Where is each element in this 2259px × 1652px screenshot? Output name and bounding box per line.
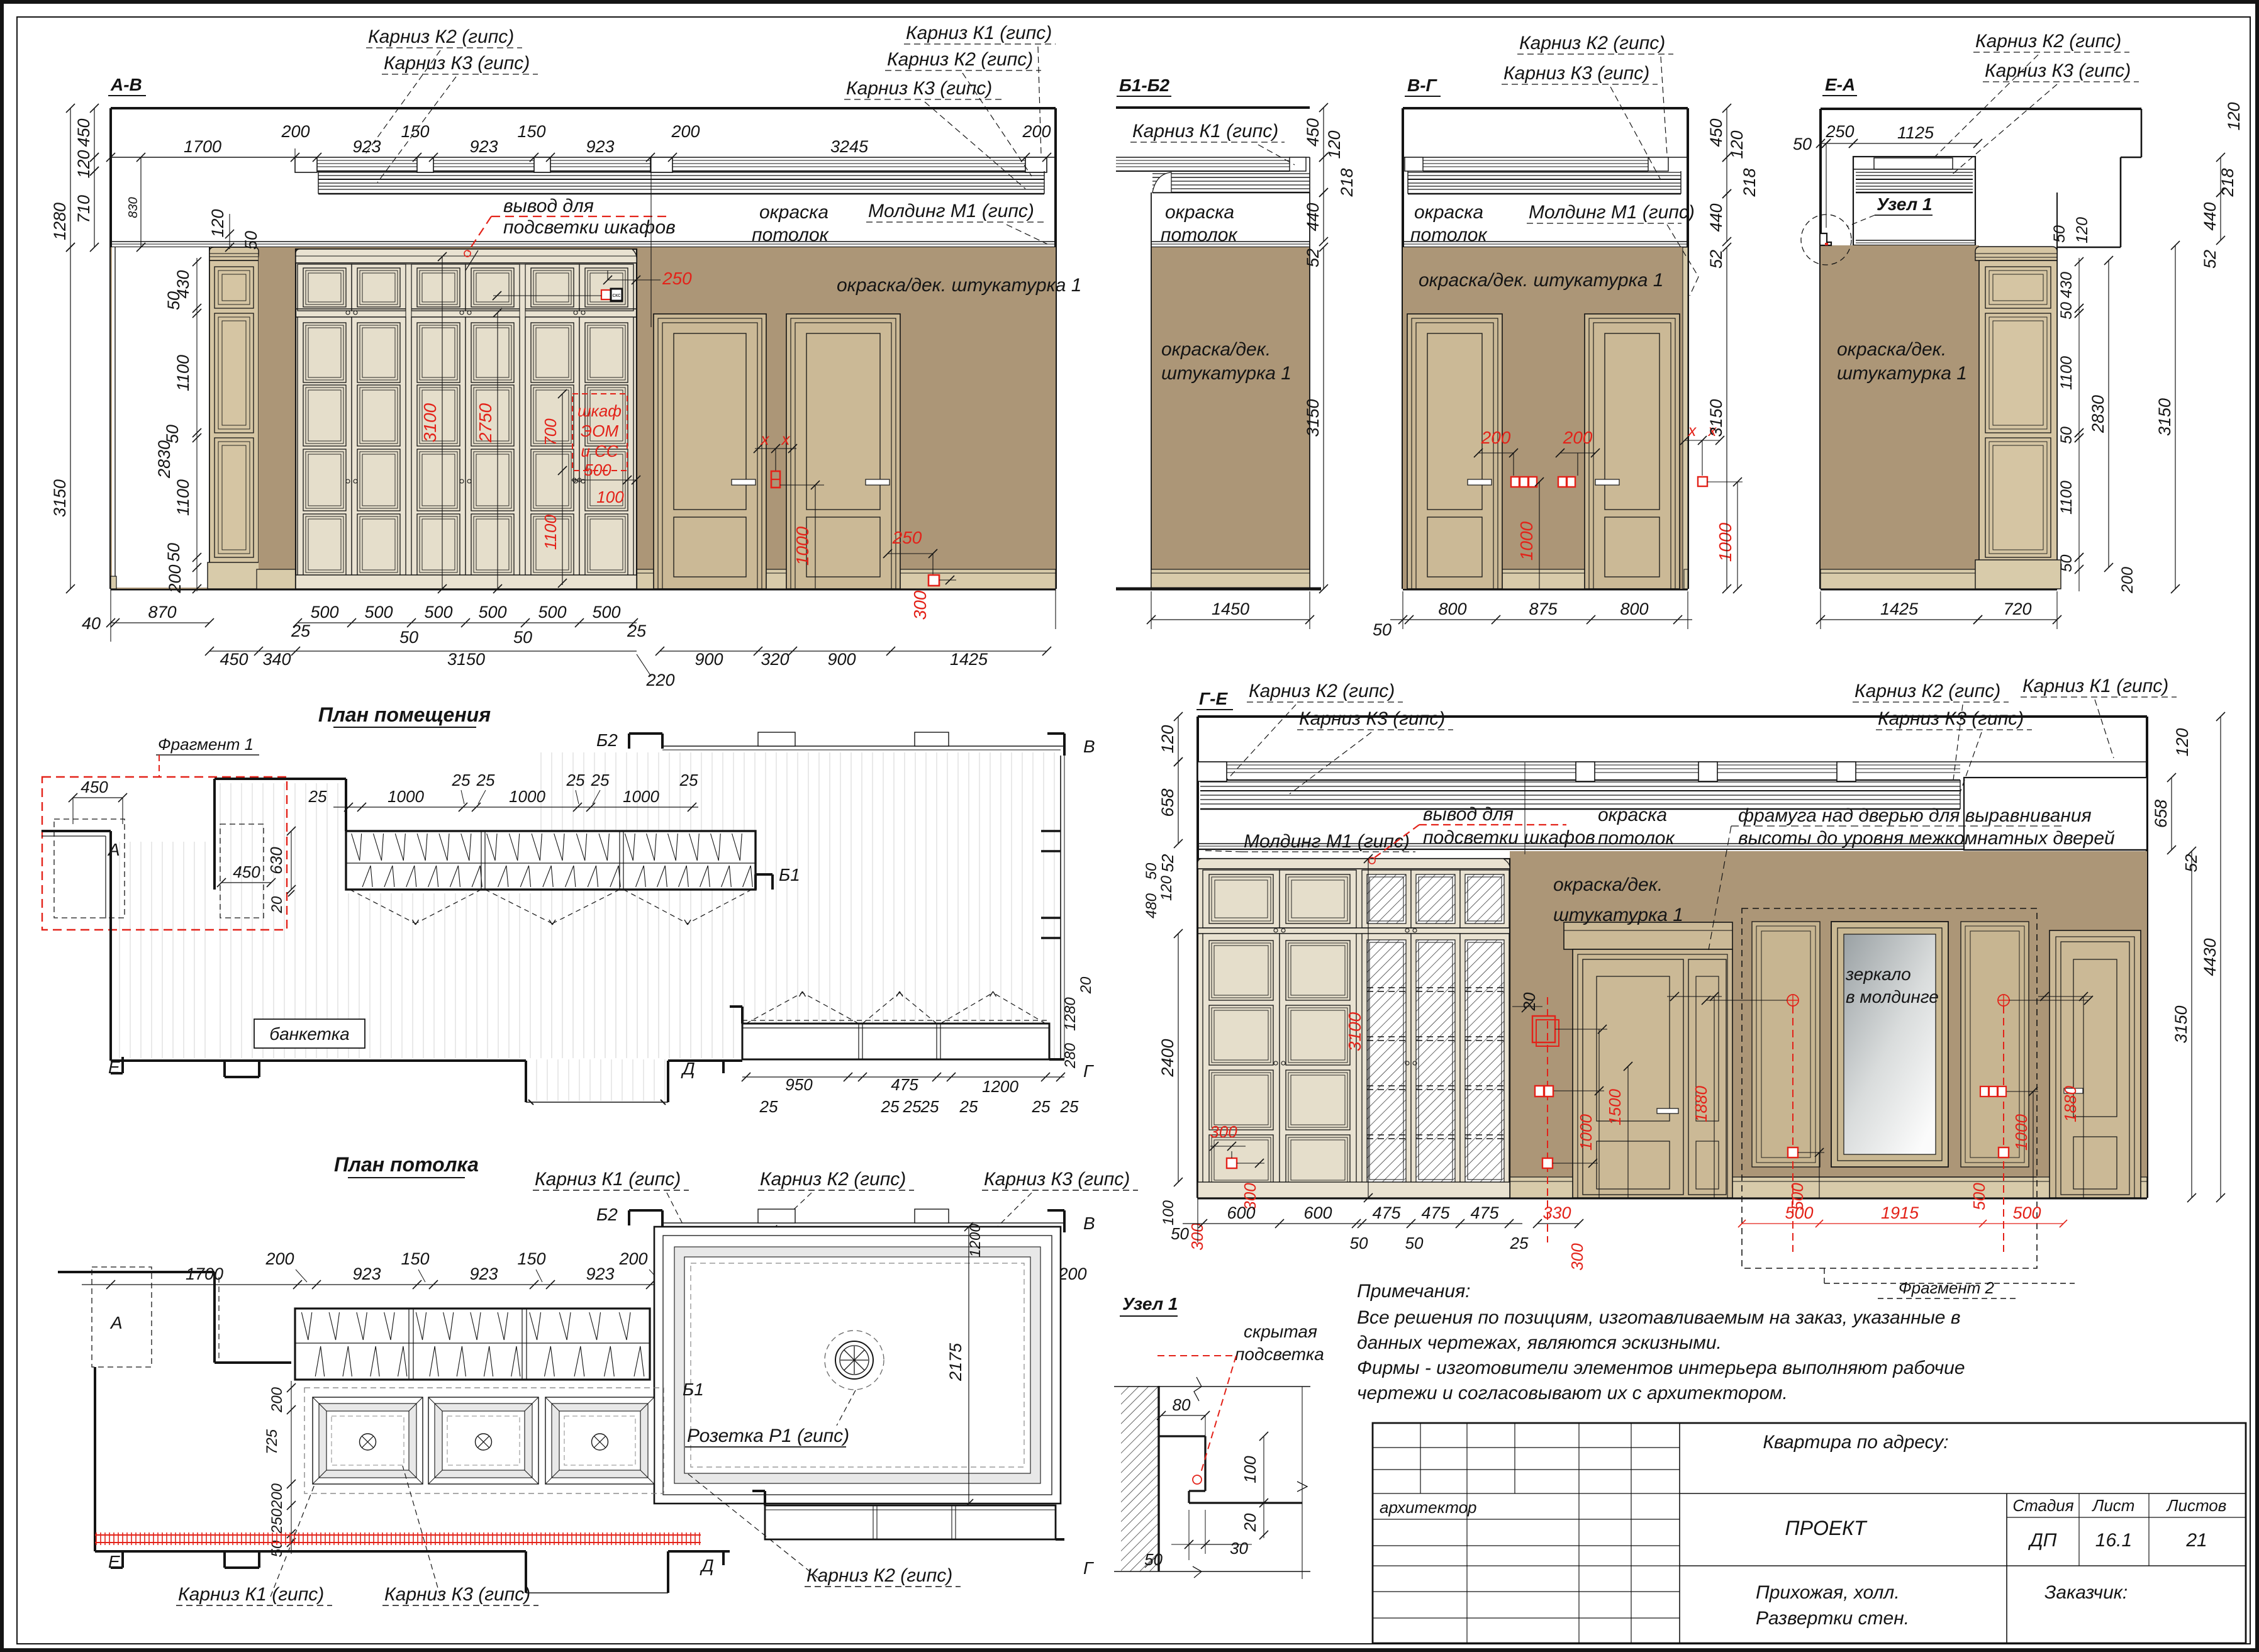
svg-text:200: 200 [265,1249,294,1268]
svg-text:окраска/дек. штукатурка 1: окраска/дек. штукатурка 1 [1419,270,1663,291]
svg-text:25: 25 [679,771,698,790]
svg-text:1880: 1880 [2061,1086,2080,1122]
svg-text:340: 340 [262,650,291,669]
svg-text:и СС: и СС [581,442,618,460]
svg-text:Карниз К3 (гипс): Карниз К3 (гипс) [1985,60,2131,81]
svg-text:475: 475 [1470,1203,1499,1222]
svg-text:шкаф: шкаф [577,401,622,420]
svg-text:Заказчик:: Заказчик: [2044,1582,2128,1603]
svg-text:Карниз К1 (гипс): Карниз К1 (гипс) [2022,676,2168,696]
svg-text:Фирмы - изготовители элементов: Фирмы - изготовители элементов интерьера… [1357,1358,1965,1378]
svg-text:Карниз К2 (гипс): Карниз К2 (гипс) [368,26,514,47]
svg-text:1000: 1000 [623,787,659,806]
svg-text:20: 20 [1078,976,1095,994]
svg-text:450: 450 [233,862,260,881]
svg-text:25: 25 [920,1097,939,1116]
svg-text:25: 25 [903,1097,922,1116]
svg-text:3150: 3150 [1303,399,1322,437]
svg-text:50: 50 [1405,1234,1424,1253]
svg-text:потолок: потолок [1598,828,1675,849]
svg-text:окраска/дек.: окраска/дек. [1837,339,1946,360]
svg-text:Г-Е: Г-Е [1199,689,1229,708]
svg-text:440: 440 [1303,203,1322,231]
svg-text:50: 50 [1793,135,1812,153]
svg-text:Фрагмент 1: Фрагмент 1 [158,735,254,754]
svg-text:1425: 1425 [950,650,988,669]
svg-text:280: 280 [1062,1042,1079,1069]
svg-text:50: 50 [1143,862,1160,879]
svg-text:1000: 1000 [1576,1114,1595,1151]
svg-text:150: 150 [517,122,545,141]
svg-text:окраска/дек. штукатурка 1: окраска/дек. штукатурка 1 [837,275,1081,296]
svg-text:Карниз К3 (гипс): Карниз К3 (гипс) [984,1169,1130,1190]
svg-text:3150: 3150 [50,479,69,517]
svg-text:658: 658 [2151,800,2170,828]
svg-text:В: В [1083,737,1095,756]
svg-text:20: 20 [269,896,286,913]
svg-text:50: 50 [2058,302,2075,320]
svg-text:Карниз К1 (гипс): Карниз К1 (гипс) [906,23,1052,43]
svg-text:1450: 1450 [1212,600,1249,618]
svg-text:25: 25 [1060,1097,1079,1116]
svg-text:2400: 2400 [1158,1039,1177,1077]
svg-text:Карниз К2 (гипс): Карниз К2 (гипс) [1855,681,2000,701]
svg-text:25: 25 [308,787,327,806]
svg-text:1100: 1100 [2058,356,2075,390]
svg-text:1000: 1000 [793,526,812,566]
svg-text:200: 200 [281,122,310,141]
svg-text:Карниз К2 (гипс): Карниз К2 (гипс) [1249,681,1395,701]
svg-text:1280: 1280 [1062,997,1079,1031]
svg-text:Листов: Листов [2166,1496,2227,1515]
svg-text:200: 200 [1022,122,1051,141]
svg-text:500: 500 [584,460,611,479]
svg-text:Д: Д [700,1556,714,1575]
svg-text:720: 720 [2003,600,2031,618]
svg-text:А-В: А-В [110,75,142,94]
svg-text:Примечания:: Примечания: [1357,1281,1470,1302]
svg-text:200: 200 [269,1387,286,1413]
svg-text:500: 500 [2012,1203,2041,1222]
svg-text:Развертки стен.: Развертки стен. [1756,1608,1909,1629]
svg-text:120: 120 [1727,130,1746,159]
svg-text:потолок: потолок [752,225,829,245]
svg-text:430: 430 [2058,272,2075,298]
svg-text:3150: 3150 [2155,398,2174,436]
svg-text:1880: 1880 [1692,1086,1710,1122]
svg-text:25: 25 [1510,1234,1529,1253]
svg-text:1700: 1700 [184,137,221,156]
svg-text:окраска: окраска [1598,805,1667,825]
svg-text:923: 923 [586,1264,614,1283]
svg-text:150: 150 [401,122,429,141]
svg-text:950: 950 [785,1075,813,1094]
svg-text:500: 500 [310,603,338,622]
svg-text:120: 120 [74,150,93,178]
svg-text:Карниз К2 (гипс): Карниз К2 (гипс) [1975,31,2121,52]
svg-text:Карниз К3 (гипс): Карниз К3 (гипс) [846,78,992,99]
svg-text:ЭОМ: ЭОМ [581,421,619,440]
svg-text:300: 300 [1188,1223,1207,1251]
svg-text:200: 200 [2119,567,2136,594]
svg-text:окраска: окраска [1165,202,1234,223]
svg-text:100: 100 [596,488,624,506]
svg-text:скс: скс [612,292,621,298]
svg-text:1915: 1915 [1881,1203,1919,1222]
svg-text:50: 50 [164,291,183,310]
svg-text:710: 710 [74,195,93,223]
svg-text:330: 330 [1542,1203,1571,1222]
svg-text:218: 218 [1740,168,1759,197]
svg-text:в молдинге: в молдинге [1846,987,1939,1007]
svg-text:800: 800 [1438,600,1466,618]
svg-text:100: 100 [1241,1456,1259,1483]
svg-text:Карниз К2 (гипс): Карниз К2 (гипс) [760,1169,906,1190]
svg-text:вывод для: вывод для [503,196,594,216]
svg-text:30: 30 [1230,1539,1248,1558]
svg-text:600: 600 [1227,1203,1255,1222]
svg-text:1100: 1100 [174,479,192,516]
svg-text:120: 120 [1158,725,1177,753]
svg-text:220: 220 [645,671,674,689]
svg-text:50: 50 [1373,620,1392,639]
svg-text:700: 700 [541,418,560,446]
svg-text:штукатурка 1: штукатурка 1 [1553,905,1683,925]
svg-text:1100: 1100 [2058,481,2075,515]
svg-text:120: 120 [2173,728,2192,756]
svg-text:200: 200 [1057,1264,1086,1283]
svg-text:658: 658 [1158,788,1177,817]
svg-text:900: 900 [694,650,723,669]
svg-text:окраска: окраска [759,202,828,223]
svg-text:100: 100 [1160,1200,1177,1225]
svg-text:500: 500 [478,603,506,622]
svg-text:3150: 3150 [1707,399,1726,437]
svg-text:20: 20 [1241,1513,1259,1532]
svg-text:120: 120 [2224,102,2243,130]
svg-text:1000: 1000 [509,787,545,806]
svg-text:300: 300 [1210,1122,1237,1141]
svg-text:52: 52 [1158,854,1177,872]
svg-text:2830: 2830 [155,440,174,479]
svg-text:Карниз К3 (гипс): Карниз К3 (гипс) [1299,708,1445,729]
svg-text:2750: 2750 [476,403,495,443]
svg-text:Все решения по позициям, изгот: Все решения по позициям, изготавливаемым… [1357,1307,1961,1328]
svg-text:16.1: 16.1 [2095,1530,2132,1551]
svg-text:800: 800 [1620,600,1648,618]
svg-text:25: 25 [291,622,311,640]
svg-text:725: 725 [264,1429,281,1454]
svg-text:50: 50 [513,628,532,647]
svg-text:50: 50 [2051,225,2068,243]
svg-text:Карниз К3 (гипс): Карниз К3 (гипс) [384,1584,530,1605]
svg-text:чертежи и согласовывают их с а: чертежи и согласовывают их с архитекторо… [1357,1383,1788,1404]
svg-text:подсветки шкафов: подсветки шкафов [503,217,676,238]
svg-text:вывод для: вывод для [1423,804,1514,825]
svg-text:окраска: окраска [1414,202,1483,223]
svg-text:450: 450 [1707,118,1726,147]
svg-text:923: 923 [352,137,381,156]
svg-text:План помещения: План помещения [318,703,491,726]
svg-text:штукатурка 1: штукатурка 1 [1161,363,1291,384]
svg-text:500: 500 [1970,1183,1988,1210]
svg-text:923: 923 [352,1264,381,1283]
svg-text:Молдинг М1 (гипс): Молдинг М1 (гипс) [868,201,1034,221]
svg-text:1000: 1000 [2012,1114,2031,1151]
svg-text:500: 500 [1785,1203,1813,1222]
svg-text:52: 52 [2182,854,2200,872]
svg-text:А: А [109,1313,123,1332]
svg-text:500: 500 [538,603,566,622]
svg-text:250: 250 [269,1508,286,1534]
svg-text:500: 500 [364,603,393,622]
svg-text:Узел 1: Узел 1 [1122,1294,1178,1314]
svg-text:450: 450 [1303,118,1322,147]
svg-text:200: 200 [269,1483,286,1509]
svg-text:50: 50 [164,543,183,562]
svg-text:Карниз К1 (гипс): Карниз К1 (гипс) [1132,121,1278,142]
svg-text:120: 120 [1158,875,1175,901]
svg-text:50: 50 [2058,555,2075,572]
svg-text:окраска/дек.: окраска/дек. [1553,874,1663,895]
svg-text:200: 200 [618,1249,647,1268]
svg-text:200: 200 [1563,428,1593,447]
svg-text:Е-А: Е-А [1825,75,1855,94]
svg-text:зеркало: зеркало [1845,964,1911,984]
svg-text:Г: Г [1083,1061,1094,1081]
svg-text:1000: 1000 [1517,521,1536,561]
svg-text:450: 450 [81,778,108,796]
svg-text:25: 25 [881,1097,900,1116]
svg-text:218: 218 [1337,168,1356,197]
svg-text:подсветка: подсветка [1235,1344,1324,1364]
svg-text:21: 21 [2185,1530,2207,1551]
svg-text:923: 923 [469,1264,498,1283]
svg-text:250: 250 [1825,122,1854,141]
svg-text:Карниз К2 (гипс): Карниз К2 (гипс) [887,49,1033,70]
svg-text:Б2: Б2 [596,1205,618,1224]
svg-text:475: 475 [1372,1203,1401,1222]
svg-text:440: 440 [2200,202,2219,230]
svg-text:3245: 3245 [830,137,869,156]
svg-text:120: 120 [208,209,227,237]
svg-text:440: 440 [1707,203,1726,232]
svg-text:банкетка: банкетка [269,1024,349,1044]
svg-text:120: 120 [1325,130,1344,159]
svg-text:2830: 2830 [2089,395,2107,433]
svg-text:25: 25 [476,771,495,790]
svg-text:x: x [1688,422,1697,440]
svg-text:Карниз К1 (гипс): Карниз К1 (гипс) [178,1584,324,1605]
svg-text:830: 830 [126,197,140,218]
svg-text:1000: 1000 [388,787,424,806]
svg-text:ПРОЕКТ: ПРОЕКТ [1785,1517,1868,1539]
svg-text:900: 900 [827,650,856,669]
svg-text:1200: 1200 [967,1224,984,1258]
svg-text:В-Г: В-Г [1407,75,1438,95]
svg-text:52: 52 [2200,250,2219,269]
svg-text:1125: 1125 [1897,123,1934,142]
svg-text:50: 50 [1350,1234,1368,1253]
svg-text:25: 25 [566,771,585,790]
svg-text:320: 320 [761,650,789,669]
svg-text:250: 250 [662,269,692,288]
svg-text:200: 200 [1481,428,1511,447]
svg-text:500: 500 [592,603,620,622]
svg-text:475: 475 [891,1075,918,1094]
svg-text:потолок: потолок [1161,225,1238,245]
svg-text:Карниз К3 (гипс): Карниз К3 (гипс) [1878,708,2024,729]
svg-text:50: 50 [399,628,418,647]
svg-text:Карниз К2 (гипс): Карниз К2 (гипс) [806,1565,952,1586]
svg-text:Б1-Б2: Б1-Б2 [1119,75,1170,95]
svg-text:25: 25 [959,1097,978,1116]
svg-text:1200: 1200 [982,1077,1018,1096]
svg-text:200: 200 [671,122,700,141]
svg-text:Д: Д [681,1059,695,1078]
svg-text:480: 480 [1143,893,1160,918]
svg-text:План потолка: План потолка [334,1153,479,1176]
svg-text:Карниз К1 (гипс): Карниз К1 (гипс) [535,1169,681,1190]
svg-text:1100: 1100 [174,355,192,391]
svg-text:Г: Г [1083,1558,1094,1578]
svg-text:Фрагмент 2: Фрагмент 2 [1899,1278,1995,1297]
svg-text:Стадия: Стадия [2012,1496,2073,1515]
svg-text:ДП: ДП [2028,1530,2057,1551]
svg-text:450: 450 [220,650,248,669]
svg-text:данных чертежах, являются эски: данных чертежах, являются эскизными. [1357,1332,1722,1353]
svg-text:630: 630 [267,847,286,874]
svg-text:3100: 3100 [420,403,440,442]
svg-text:200: 200 [165,564,184,593]
svg-text:x: x [760,430,770,449]
svg-text:Розетка Р1 (гипс): Розетка Р1 (гипс) [687,1426,849,1446]
svg-text:3100: 3100 [1345,1012,1364,1051]
svg-text:50: 50 [1171,1224,1189,1243]
svg-text:870: 870 [148,603,176,622]
svg-text:25: 25 [627,622,647,640]
svg-text:штукатурка 1: штукатурка 1 [1837,363,1967,384]
svg-text:высоты до уровня межкомнатных: высоты до уровня межкомнатных дверей [1738,828,2115,849]
svg-text:923: 923 [586,137,614,156]
svg-text:475: 475 [1421,1203,1450,1222]
svg-text:50: 50 [242,231,260,250]
svg-text:3150: 3150 [2172,1005,2190,1043]
svg-text:923: 923 [469,137,498,156]
svg-text:1700: 1700 [186,1264,223,1283]
svg-text:Карниз К3 (гипс): Карниз К3 (гипс) [384,53,530,74]
svg-text:500: 500 [424,603,452,622]
svg-text:Молдинг М1 (гипс): Молдинг М1 (гипс) [1529,202,1695,223]
svg-text:Лист: Лист [2092,1496,2135,1515]
svg-text:25: 25 [759,1097,778,1116]
svg-text:1425: 1425 [1880,600,1919,618]
svg-text:Молдинг М1 (гипс): Молдинг М1 (гипс) [1244,831,1410,852]
svg-text:50: 50 [2058,427,2075,444]
svg-text:250: 250 [892,528,922,547]
svg-text:В: В [1083,1214,1095,1233]
svg-text:600: 600 [1303,1203,1332,1222]
svg-text:Б2: Б2 [596,730,618,750]
svg-text:450: 450 [74,118,93,147]
svg-text:875: 875 [1529,600,1558,618]
svg-text:150: 150 [517,1249,545,1268]
svg-text:25: 25 [1032,1097,1051,1116]
svg-text:1000: 1000 [1715,522,1735,562]
svg-text:Квартира по адресу:: Квартира по адресу: [1763,1432,1948,1453]
svg-text:архитектор: архитектор [1380,1498,1477,1517]
svg-text:Карниз К2 (гипс): Карниз К2 (гипс) [1519,33,1665,53]
svg-text:Карниз К3 (гипс): Карниз К3 (гипс) [1503,63,1649,84]
svg-text:80: 80 [1173,1395,1191,1414]
svg-text:Б1: Б1 [683,1380,704,1399]
svg-text:40: 40 [82,614,101,633]
svg-text:x: x [781,430,791,449]
svg-text:скрытая: скрытая [1244,1322,1317,1341]
svg-text:Узел 1: Узел 1 [1877,194,1933,214]
svg-text:120: 120 [2073,217,2091,243]
svg-text:300: 300 [910,590,930,620]
svg-text:300: 300 [1568,1243,1587,1271]
svg-text:150: 150 [401,1249,429,1268]
svg-text:подсветки шкафов: подсветки шкафов [1423,827,1595,848]
svg-text:1500: 1500 [1605,1089,1624,1125]
svg-text:4430: 4430 [2200,938,2219,976]
svg-text:25: 25 [591,771,610,790]
svg-text:фрамуга над дверью для выравни: фрамуга над дверью для выравнивания [1738,805,2092,826]
svg-text:52: 52 [1707,250,1726,269]
svg-text:потолок: потолок [1410,225,1488,245]
svg-text:2175: 2175 [946,1342,965,1381]
svg-text:1280: 1280 [50,203,69,240]
svg-text:А: А [107,840,120,859]
svg-text:3150: 3150 [447,650,485,669]
svg-text:Прихожая, холл.: Прихожая, холл. [1756,1582,1900,1603]
svg-text:окраска/дек.: окраска/дек. [1161,339,1271,360]
svg-text:1100: 1100 [541,515,560,550]
svg-text:20: 20 [1520,992,1539,1011]
svg-text:Б1: Б1 [779,865,800,885]
svg-text:25: 25 [452,771,471,790]
